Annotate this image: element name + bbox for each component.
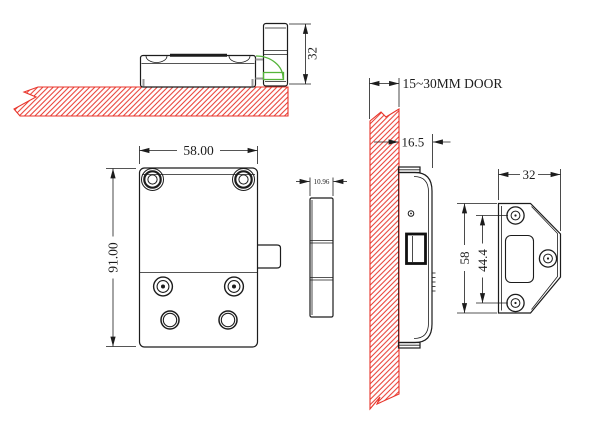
- dim-label-plate-height: 58: [457, 252, 472, 265]
- dim-label-mount-depth: 16.5: [402, 135, 425, 150]
- dim-front-width: 58.00: [140, 143, 258, 164]
- view-lock-edge: 10.96: [296, 178, 347, 318]
- screw-boss-top-left: [142, 169, 164, 191]
- latch-window: [407, 234, 426, 264]
- dim-label-plate-hole-spacing: 44.4: [475, 249, 490, 272]
- lock-edge-body: [310, 198, 333, 317]
- screw-hole-mid-right: [225, 277, 244, 296]
- screw-boss-top-right: [233, 169, 255, 191]
- strike-plate-body: [499, 204, 561, 314]
- dim-label-plate-width: 32: [523, 167, 536, 182]
- view-strike-plate: 32 58 44.4: [457, 167, 561, 313]
- screw-hole-mid-left: [154, 277, 173, 296]
- dim-plate-hole-spacing: 44.4: [475, 216, 508, 304]
- panel-section-hatch: [14, 87, 288, 116]
- latch-bolt: [258, 245, 281, 268]
- dim-label-door-thickness: 15~30MM DOOR: [403, 76, 503, 91]
- view-side-mounted: 32: [14, 24, 320, 117]
- dim-edge-thickness: 10.96: [296, 178, 347, 197]
- door-section-hatch: [370, 109, 399, 409]
- plate-hole-bottom: [507, 294, 524, 311]
- dim-door-thickness: 15~30MM DOOR: [370, 76, 503, 119]
- dim-label-front-width: 58.00: [183, 143, 214, 158]
- hole-bottom-right: [219, 311, 237, 329]
- technical-drawing-canvas: 32 58.00 91.00: [0, 0, 613, 437]
- dim-side-plate-height: 32: [289, 24, 320, 84]
- hole-bottom-left: [161, 311, 179, 329]
- lock-front-body: [140, 168, 281, 347]
- plate-hole-top: [507, 207, 524, 224]
- dim-label-side-plate-height: 32: [305, 47, 320, 60]
- plate-hole-right: [539, 250, 556, 267]
- dim-label-edge-thickness: 10.96: [314, 178, 330, 186]
- dim-front-height: 91.00: [106, 169, 137, 347]
- view-lock-front: 58.00 91.00: [106, 143, 281, 347]
- lock-side-on-door: [399, 167, 436, 348]
- dim-label-front-height: 91.00: [106, 242, 121, 273]
- strike-slot: [506, 236, 534, 283]
- dim-plate-width: 32: [499, 167, 561, 231]
- technical-drawing-page: 32 58.00 91.00: [0, 0, 613, 437]
- lock-body-side: [141, 55, 264, 87]
